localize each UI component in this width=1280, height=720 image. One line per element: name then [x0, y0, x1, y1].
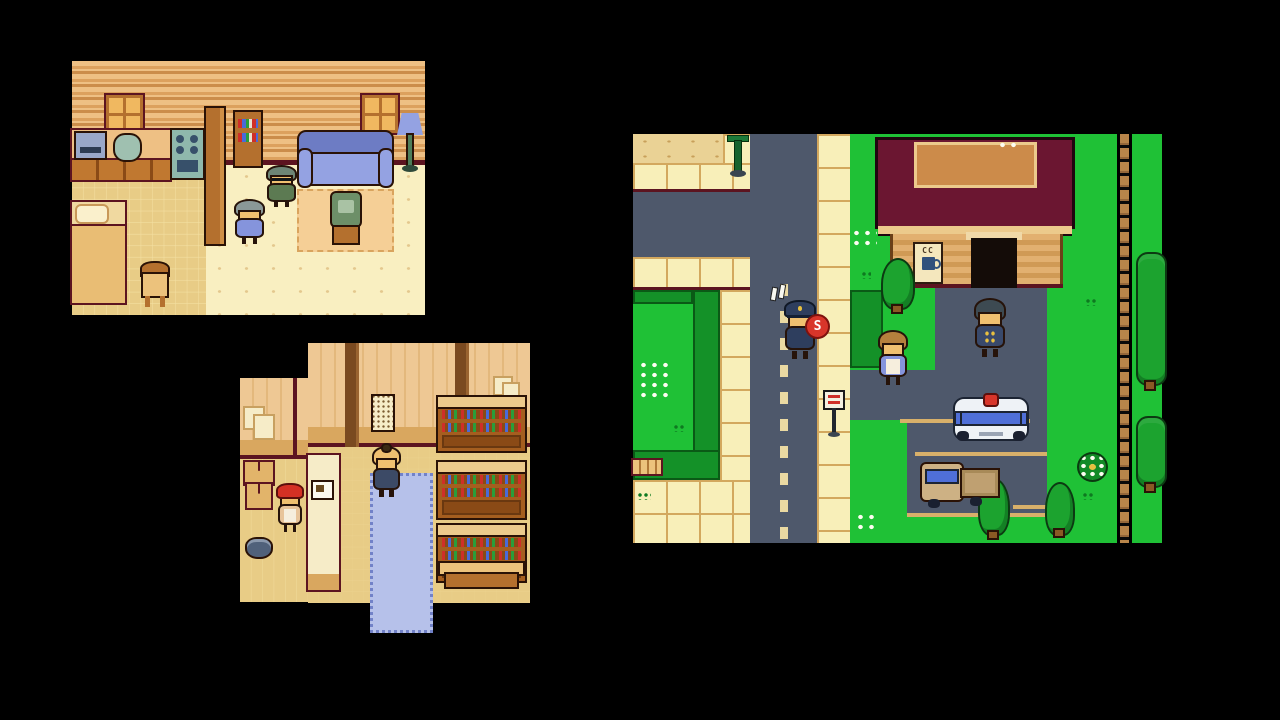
cafe-door[interactable] — [971, 238, 1017, 288]
truck-window — [927, 471, 957, 482]
flower-cluster — [997, 140, 1017, 150]
bush-column — [1136, 416, 1167, 488]
lamppost — [728, 136, 748, 178]
npc-leg — [242, 238, 246, 244]
sidewalk-bottom-left — [633, 480, 750, 543]
tree — [1045, 482, 1075, 536]
shelf-base — [442, 500, 521, 515]
npc-leg — [284, 525, 288, 532]
red-cap — [278, 485, 301, 497]
bed-pillow — [77, 206, 107, 222]
shelf-top — [438, 462, 525, 472]
coffee-mug-icon — [922, 257, 935, 270]
sand-lot — [633, 134, 723, 163]
lamppost-pole — [735, 141, 741, 171]
sign-plate — [825, 392, 843, 408]
grass-tuft — [1085, 298, 1097, 306]
npc-leg — [803, 351, 808, 359]
shopkeeper-npc[interactable] — [278, 485, 302, 533]
grass-tuft — [1082, 492, 1094, 500]
stove-burner — [176, 135, 184, 143]
npc-face — [378, 460, 395, 470]
goods-shelf[interactable] — [438, 397, 525, 451]
sofa-arm — [380, 150, 392, 186]
bush-column — [1136, 252, 1167, 386]
npc-leg — [792, 351, 797, 359]
chair-seat — [143, 274, 167, 296]
apron — [284, 509, 297, 522]
customer-npc[interactable] — [373, 448, 400, 498]
radio[interactable] — [76, 133, 105, 158]
cardboard-box — [245, 462, 273, 484]
bench-base — [446, 574, 517, 587]
shelf-top — [438, 525, 525, 535]
lamp-base — [402, 165, 418, 172]
street-sign — [825, 392, 843, 438]
car-windshield — [962, 413, 1020, 424]
lamppost-base — [730, 170, 746, 177]
car-side-window — [956, 413, 960, 424]
npc-leg — [293, 525, 297, 532]
bench — [440, 563, 523, 574]
checkout-counter[interactable] — [308, 455, 339, 590]
panel-shop-interior[interactable] — [240, 343, 530, 635]
flower-bed-center — [1089, 464, 1096, 470]
lamp-shade — [397, 113, 423, 135]
screenshot-stage: CC — [0, 0, 1280, 720]
car-wheel — [957, 431, 969, 441]
panel-house-interior[interactable] — [72, 61, 425, 315]
cafe-roof — [878, 140, 1072, 226]
npc-leg — [389, 490, 393, 497]
panel-town-street[interactable]: CC — [633, 134, 1162, 543]
grass-tuft — [637, 492, 651, 500]
npc-leg — [379, 490, 383, 497]
tree — [881, 258, 915, 310]
bed-blanket — [72, 226, 125, 303]
counter-drawers — [72, 160, 170, 180]
counter-card — [313, 482, 332, 498]
police-light — [985, 395, 997, 405]
truck-bed — [962, 470, 998, 496]
wall-divider — [293, 378, 297, 463]
wall-frame — [255, 416, 273, 438]
car-side-window — [1022, 413, 1026, 424]
bottle-row — [442, 410, 521, 419]
pedestrian-npc[interactable] — [879, 332, 907, 386]
stop-paddle-letter: S — [814, 319, 822, 334]
npc-leg — [285, 201, 289, 207]
parking-line — [1013, 505, 1047, 509]
flower-cluster — [851, 228, 877, 250]
truck-wheel — [928, 499, 940, 508]
npc-leg — [982, 349, 987, 357]
stop-paddle: S — [805, 314, 830, 339]
npc-leg — [896, 377, 900, 385]
floor-lamp — [397, 113, 423, 173]
flower-cluster — [638, 360, 668, 398]
tv-stand — [334, 227, 358, 243]
sign-stripes — [828, 395, 840, 405]
park-bench — [633, 460, 661, 474]
book-row — [238, 133, 258, 142]
npc-torso — [269, 185, 293, 200]
npc-leg — [993, 349, 998, 357]
old-woman-npc[interactable] — [235, 201, 264, 245]
npc-leg — [886, 377, 890, 385]
shelf-top — [438, 397, 525, 407]
tree-trunk — [893, 306, 901, 312]
bottle-row — [442, 538, 521, 547]
npc-face — [884, 345, 902, 356]
coat-buttons — [984, 330, 996, 344]
tree-trunk — [989, 532, 997, 538]
park-hedge-top — [633, 290, 693, 304]
npc-face — [980, 314, 999, 326]
bottle-row — [442, 551, 521, 560]
grass-tuft — [861, 271, 871, 279]
sofa-seat — [307, 154, 384, 184]
npc-leg — [253, 238, 257, 244]
sidewalk-row — [633, 257, 750, 287]
book-row — [238, 119, 258, 128]
grass-tuft — [673, 424, 685, 432]
bottle-row — [442, 475, 521, 484]
chair-leg — [160, 296, 165, 307]
lot-edge — [907, 513, 1047, 517]
sidewalk-edge — [633, 189, 750, 192]
goods-shelf[interactable] — [438, 462, 525, 518]
cafe-sign: CC — [913, 242, 943, 284]
sofa-arm — [299, 150, 311, 186]
sunglasses — [272, 178, 292, 181]
lot-grass-corner — [850, 420, 907, 517]
flower-bed — [1077, 452, 1108, 482]
parking-line — [915, 452, 1047, 456]
wall-poster — [373, 396, 393, 430]
chair-leg — [145, 296, 150, 307]
truck-wheel — [970, 497, 982, 506]
sign-base — [828, 432, 840, 437]
card-mark — [316, 485, 324, 492]
npc-torso — [237, 220, 261, 236]
npc-leg — [274, 201, 278, 207]
window — [362, 95, 398, 133]
tree-trunk — [1055, 530, 1063, 536]
tv-screen — [338, 200, 354, 213]
room-divider-pillar — [206, 108, 224, 244]
sofa[interactable] — [299, 132, 392, 190]
wall-pillar — [345, 343, 359, 447]
shelf-base — [442, 435, 521, 448]
bottle-row — [442, 488, 521, 497]
flower-cluster — [855, 512, 879, 534]
old-man-npc[interactable] — [267, 167, 296, 208]
pot — [247, 539, 271, 557]
dress-front — [886, 359, 901, 374]
cafe-sign-steam: CC — [922, 247, 934, 255]
oven-door — [177, 160, 198, 172]
mug-handle — [932, 259, 941, 269]
topknot — [383, 445, 389, 452]
truck-cab — [922, 464, 962, 500]
lamp-pole — [408, 135, 412, 166]
radio-speaker — [80, 147, 101, 153]
annex-wall-band — [240, 440, 308, 455]
sidewalk-column-left — [720, 290, 750, 480]
bed[interactable] — [72, 202, 125, 303]
counter-base — [308, 574, 339, 590]
dirt-path — [1117, 134, 1132, 543]
npc-face — [282, 497, 297, 507]
tv-body — [332, 193, 360, 226]
bush-trunk — [1146, 382, 1154, 389]
car-wheel — [1013, 431, 1025, 441]
pickup-truck[interactable] — [922, 462, 998, 508]
chair — [139, 263, 171, 309]
sink[interactable] — [115, 135, 140, 160]
car-grille — [979, 432, 1003, 436]
sidewalk-column-right — [817, 134, 850, 543]
sign-pole — [832, 408, 836, 434]
television[interactable] — [329, 193, 363, 244]
stove[interactable] — [172, 130, 203, 178]
npc-torso — [375, 470, 398, 488]
bush-trunk — [1146, 484, 1154, 491]
window — [106, 95, 143, 133]
police-car[interactable] — [955, 395, 1027, 443]
cardboard-box — [247, 484, 271, 508]
bottle-row — [442, 423, 521, 432]
bookshelf[interactable] — [235, 112, 261, 166]
npc-face — [240, 212, 259, 221]
cafe-roof-top — [914, 142, 1037, 188]
villager-npc[interactable] — [975, 300, 1005, 358]
horizontal-road — [633, 192, 750, 257]
